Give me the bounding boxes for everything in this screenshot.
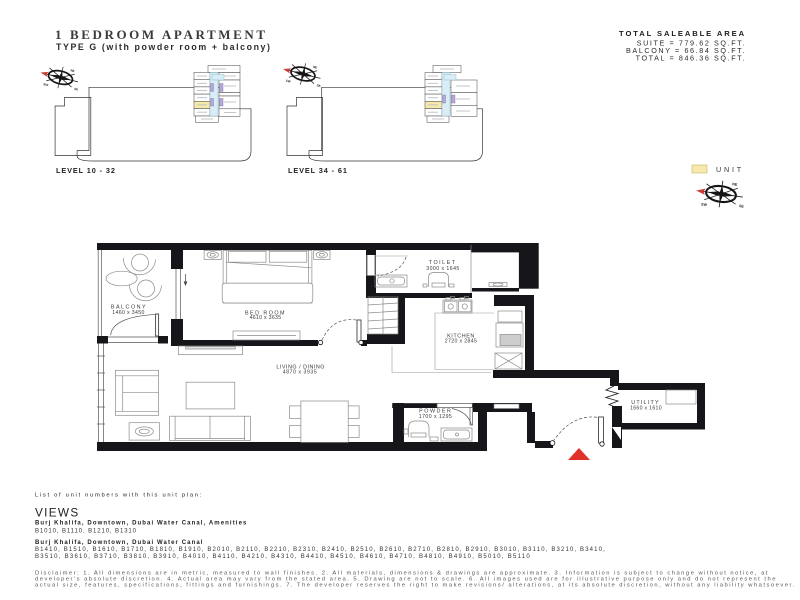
- svg-text:3000 x 1645: 3000 x 1645: [426, 266, 460, 272]
- svg-text:List of unit numbers with this: List of unit numbers with this unit plan…: [35, 493, 203, 499]
- svg-text:1700 x 1295: 1700 x 1295: [419, 414, 453, 420]
- svg-text:LEVEL 10 - 32: LEVEL 10 - 32: [56, 166, 116, 175]
- svg-text:1 BEDROOM APARTMENT: 1 BEDROOM APARTMENT: [55, 27, 268, 42]
- svg-text:2720 x 2845: 2720 x 2845: [445, 338, 477, 344]
- svg-text:UNIT: UNIT: [716, 165, 744, 174]
- svg-text:1660 x 1610: 1660 x 1610: [630, 405, 662, 411]
- svg-text:1460 x 3450: 1460 x 3450: [112, 310, 144, 316]
- svg-text:TOTAL SALEABLE AREA: TOTAL SALEABLE AREA: [619, 29, 746, 38]
- svg-text:4870 x 3935: 4870 x 3935: [283, 370, 318, 376]
- svg-text:B3510, B3610, B3710, B3810, B3: B3510, B3610, B3710, B3810, B3910, B4010…: [35, 554, 531, 560]
- svg-text:Burj Khalifa, Downtown, Dubai: Burj Khalifa, Downtown, Dubai Water Cana…: [35, 540, 204, 546]
- svg-text:Burj Khalifa, Downtown, Dubai: Burj Khalifa, Downtown, Dubai Water Cana…: [35, 521, 247, 527]
- svg-text:B1410, B1510, B1610, B1710, B1: B1410, B1510, B1610, B1710, B1810, B1910…: [35, 547, 606, 553]
- svg-text:4610 x 3635: 4610 x 3635: [250, 315, 282, 321]
- svg-text:VIEWS: VIEWS: [35, 506, 80, 520]
- svg-text:TOTAL = 846.36 SQ.FT.: TOTAL = 846.36 SQ.FT.: [636, 53, 746, 62]
- svg-text:LEVEL 34 - 61: LEVEL 34 - 61: [288, 166, 348, 175]
- svg-text:actual size, features, specifi: actual size, features, specifications, f…: [35, 583, 796, 589]
- svg-text:B1010, B1110, B1210, B1310: B1010, B1110, B1210, B1310: [35, 528, 137, 534]
- svg-text:TYPE G (with powder room + bal: TYPE G (with powder room + balcony): [56, 42, 272, 52]
